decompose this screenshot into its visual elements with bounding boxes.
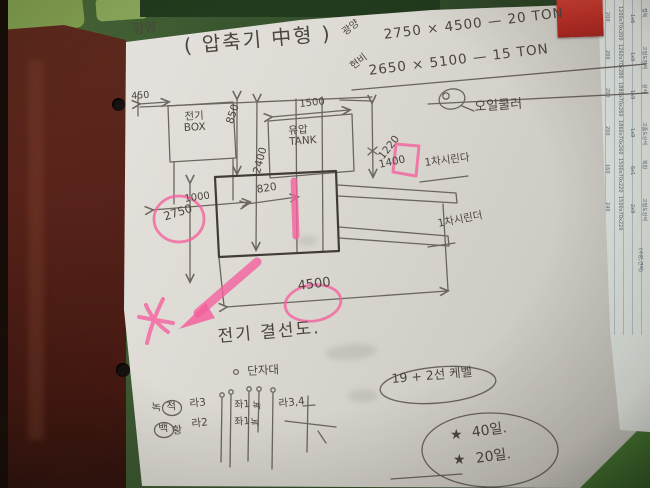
spec-cell: 160 — [604, 164, 609, 174]
wire-col1-bottom: 라2 — [191, 417, 208, 430]
spec-cell: 200 — [604, 88, 609, 98]
pencil-smudge — [296, 236, 318, 246]
star-icon: ★ — [453, 453, 466, 468]
spec-cell: 1500x70x220 — [617, 158, 622, 193]
wire-col2-bottom: 좌1 — [234, 417, 250, 429]
spec-cell: 200 — [604, 12, 609, 22]
spec-cell: 1x9 — [629, 128, 634, 137]
legend-yellow: 황 — [172, 425, 183, 437]
spec-cell: 접복 — [641, 8, 646, 17]
spec-cell: 1260x70x280 — [617, 44, 622, 79]
wire-col2-top: 좌1 — [234, 400, 250, 412]
spec-cell: 복합 — [641, 160, 646, 169]
wire-col1-top: 라3 — [189, 397, 206, 410]
photo-of-sketch: 200 1200x70x200 1x6 접복 200 1260x70x280 1… — [0, 0, 650, 488]
spec-cell: 1x9 — [629, 52, 634, 61]
spec-cell: 2x9 — [629, 204, 634, 213]
spec-cell: 고품도상석 — [641, 122, 646, 145]
spec-footer: (수량;견적) — [637, 248, 642, 272]
terminal-label: 단자대 — [247, 363, 279, 377]
legend-green: 녹 — [151, 402, 162, 414]
spec-cell: 1880x70x260 — [617, 82, 622, 117]
spec-cell: 6x1 — [629, 166, 634, 175]
tank-label: 유압 TANK — [288, 124, 317, 149]
spec-cell: 1200x70x200 — [617, 6, 622, 41]
legend-red: 적 — [166, 401, 177, 413]
star-icon: ★ — [450, 428, 463, 443]
spec-cell: 1860x70x260 — [617, 120, 622, 155]
wire-col3-bottom: 녹 — [250, 418, 260, 429]
spec-cell: 1x9 — [629, 90, 634, 99]
spec-cell: 200 — [604, 50, 609, 60]
spec-cell: 고밀도장석 — [641, 46, 646, 69]
spec-cell: 200 — [604, 126, 609, 136]
binder-hole — [116, 363, 130, 377]
electric-box-label: 전기 BOX — [183, 111, 206, 135]
pencil-smudge — [348, 390, 378, 402]
spec-cell: 고밀도상석 — [641, 198, 646, 221]
wire-col3-top: 녹 — [252, 401, 262, 412]
spec-cell: 삼석 — [641, 84, 646, 93]
wood-ledge — [0, 0, 126, 488]
wood-streak — [28, 60, 44, 440]
spec-cell: 1500x70x220 — [617, 196, 622, 231]
binder-hole — [112, 98, 125, 111]
spec-cell: 240 — [604, 202, 609, 212]
legend-white: 백 — [158, 423, 169, 435]
frame-edge — [0, 0, 8, 488]
dim-450: 450 — [131, 91, 150, 102]
spec-cell: 1x6 — [629, 14, 634, 23]
